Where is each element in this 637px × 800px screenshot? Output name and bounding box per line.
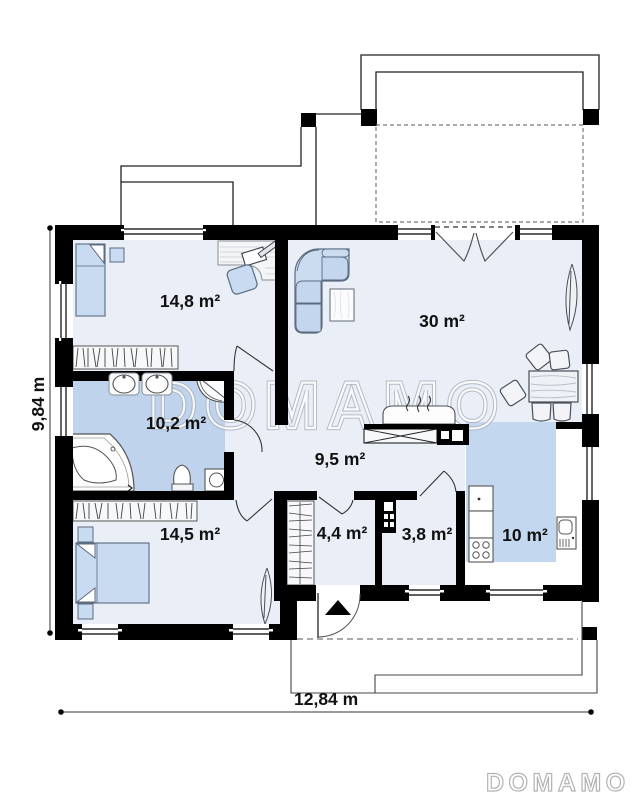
- svg-text:14,8 m²: 14,8 m²: [160, 291, 220, 311]
- svg-text:10 m²: 10 m²: [502, 525, 548, 545]
- svg-text:14,5 m²: 14,5 m²: [160, 524, 220, 544]
- svg-text:9,5 m²: 9,5 m²: [315, 449, 366, 469]
- svg-text:10,2 m²: 10,2 m²: [146, 413, 206, 433]
- svg-text:3,8 m²: 3,8 m²: [402, 524, 453, 544]
- svg-text:DOMAMO: DOMAMO: [486, 769, 630, 797]
- svg-text:4,4 m²: 4,4 m²: [317, 523, 368, 543]
- svg-text:30 m²: 30 m²: [419, 311, 465, 331]
- svg-text:12,84 m: 12,84 m: [294, 689, 358, 709]
- svg-text:9,84 m: 9,84 m: [28, 377, 48, 431]
